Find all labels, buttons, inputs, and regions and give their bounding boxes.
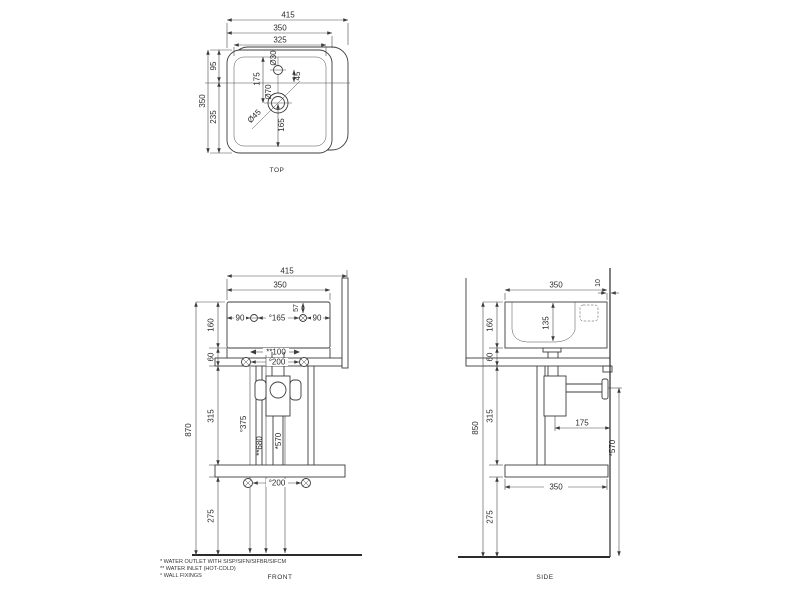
trap-left-lobe: [255, 380, 266, 400]
dim-front-overall-width: 415: [280, 267, 294, 276]
top-view-label: TOP: [270, 167, 285, 174]
technical-drawing-page: 415 350 325 350 95 235 175 45 Ø30 Ø70 Ø4…: [0, 0, 800, 600]
dim-front-rail-fixing-spacing: °200: [269, 358, 286, 367]
dim-top-235: 235: [209, 110, 218, 124]
dim-top-depth: 350: [198, 94, 207, 108]
trap-body-side: [544, 376, 566, 416]
dim-side-overall-height: 850: [471, 421, 480, 435]
front-view-label: FRONT: [268, 574, 293, 581]
dim-front-inlet-spacing: **100: [266, 348, 286, 357]
dim-side-shelf-depth: 350: [549, 483, 563, 492]
side-panel-front: [342, 278, 348, 368]
dim-side-bowl-depth: 135: [542, 316, 551, 330]
basin-side: [505, 302, 607, 348]
dim-side-basin-height: 160: [486, 318, 495, 332]
dim-top-95: 95: [209, 61, 218, 70]
dim-front-overall-height: 870: [184, 423, 193, 437]
dim-front-basin-width: 350: [273, 281, 287, 290]
dim-top-165: 165: [277, 118, 286, 132]
wall-bracket: [603, 366, 612, 372]
dim-front-outlet-height: *570: [274, 432, 283, 449]
water-inlet-symbol-left: [250, 350, 256, 355]
dim-top-overall-width: 415: [281, 11, 295, 20]
front-view: 415 350 90 °165 90 57 **100: [184, 267, 362, 582]
dim-front-hole-left: 90: [236, 314, 245, 323]
footnote-water-outlet: * WATER OUTLET WITH SISP/SIFN/SIFBR/SIFC…: [160, 559, 287, 565]
dim-front-bottom-height: 275: [207, 509, 216, 523]
washbasin-technical-drawing: 415 350 325 350 95 235 175 45 Ø30 Ø70 Ø4…: [0, 0, 800, 600]
side-view-label: SIDE: [536, 574, 553, 581]
drain-stub-side: [543, 348, 561, 352]
side-view: 350 10 135 175 *570: [458, 268, 622, 581]
dim-faucet-dia: Ø30: [269, 50, 278, 66]
dim-front-hole-spacing: °165: [269, 314, 286, 323]
dim-front-fixing-height: °375: [239, 415, 248, 432]
dim-side-wall-gap: 10: [595, 279, 602, 287]
basin-front: [227, 302, 330, 348]
trap-right-lobe: [290, 380, 301, 400]
footnote-wall-fixings: ° WALL FIXINGS: [160, 573, 202, 579]
dim-side-basin-depth: 350: [549, 281, 563, 290]
dim-top-175: 175: [253, 72, 262, 86]
dim-side-bottom-height: 275: [486, 510, 495, 524]
dim-front-basin-height: 160: [207, 318, 216, 332]
dim-front-mid-height: 315: [207, 409, 216, 423]
dim-front-hole-from-top: 57: [293, 304, 300, 312]
dim-side-apron-height: 60: [486, 352, 495, 361]
dim-top-45: 45: [293, 71, 302, 80]
dim-side-outlet-height: *570: [608, 439, 617, 456]
dim-front-apron-height: 60: [207, 352, 216, 361]
footnote-water-inlet: ** WATER INLET (HOT-COLD): [160, 566, 236, 572]
dim-drain-outer-dia: Ø70: [264, 84, 273, 100]
dim-side-mid-height: 315: [486, 409, 495, 423]
lower-shelf-front: [215, 465, 345, 477]
top-view: 415 350 325 350 95 235 175 45 Ø30 Ø70 Ø4…: [198, 11, 350, 175]
dim-front-inlet-height: **680: [255, 436, 264, 456]
dim-front-shelf-fixing-spacing: °200: [269, 479, 286, 488]
dim-front-hole-right: 90: [313, 314, 322, 323]
outlet-wall-flange: [602, 379, 608, 399]
dim-side-trap-to-wall: 175: [575, 419, 589, 428]
dim-top-rim-width: 350: [273, 24, 287, 33]
dim-top-inner-width: 325: [273, 36, 287, 45]
lower-shelf-side: [505, 465, 608, 477]
trap-cap-front: [270, 382, 286, 398]
water-inlet-symbol-right: [294, 350, 300, 355]
